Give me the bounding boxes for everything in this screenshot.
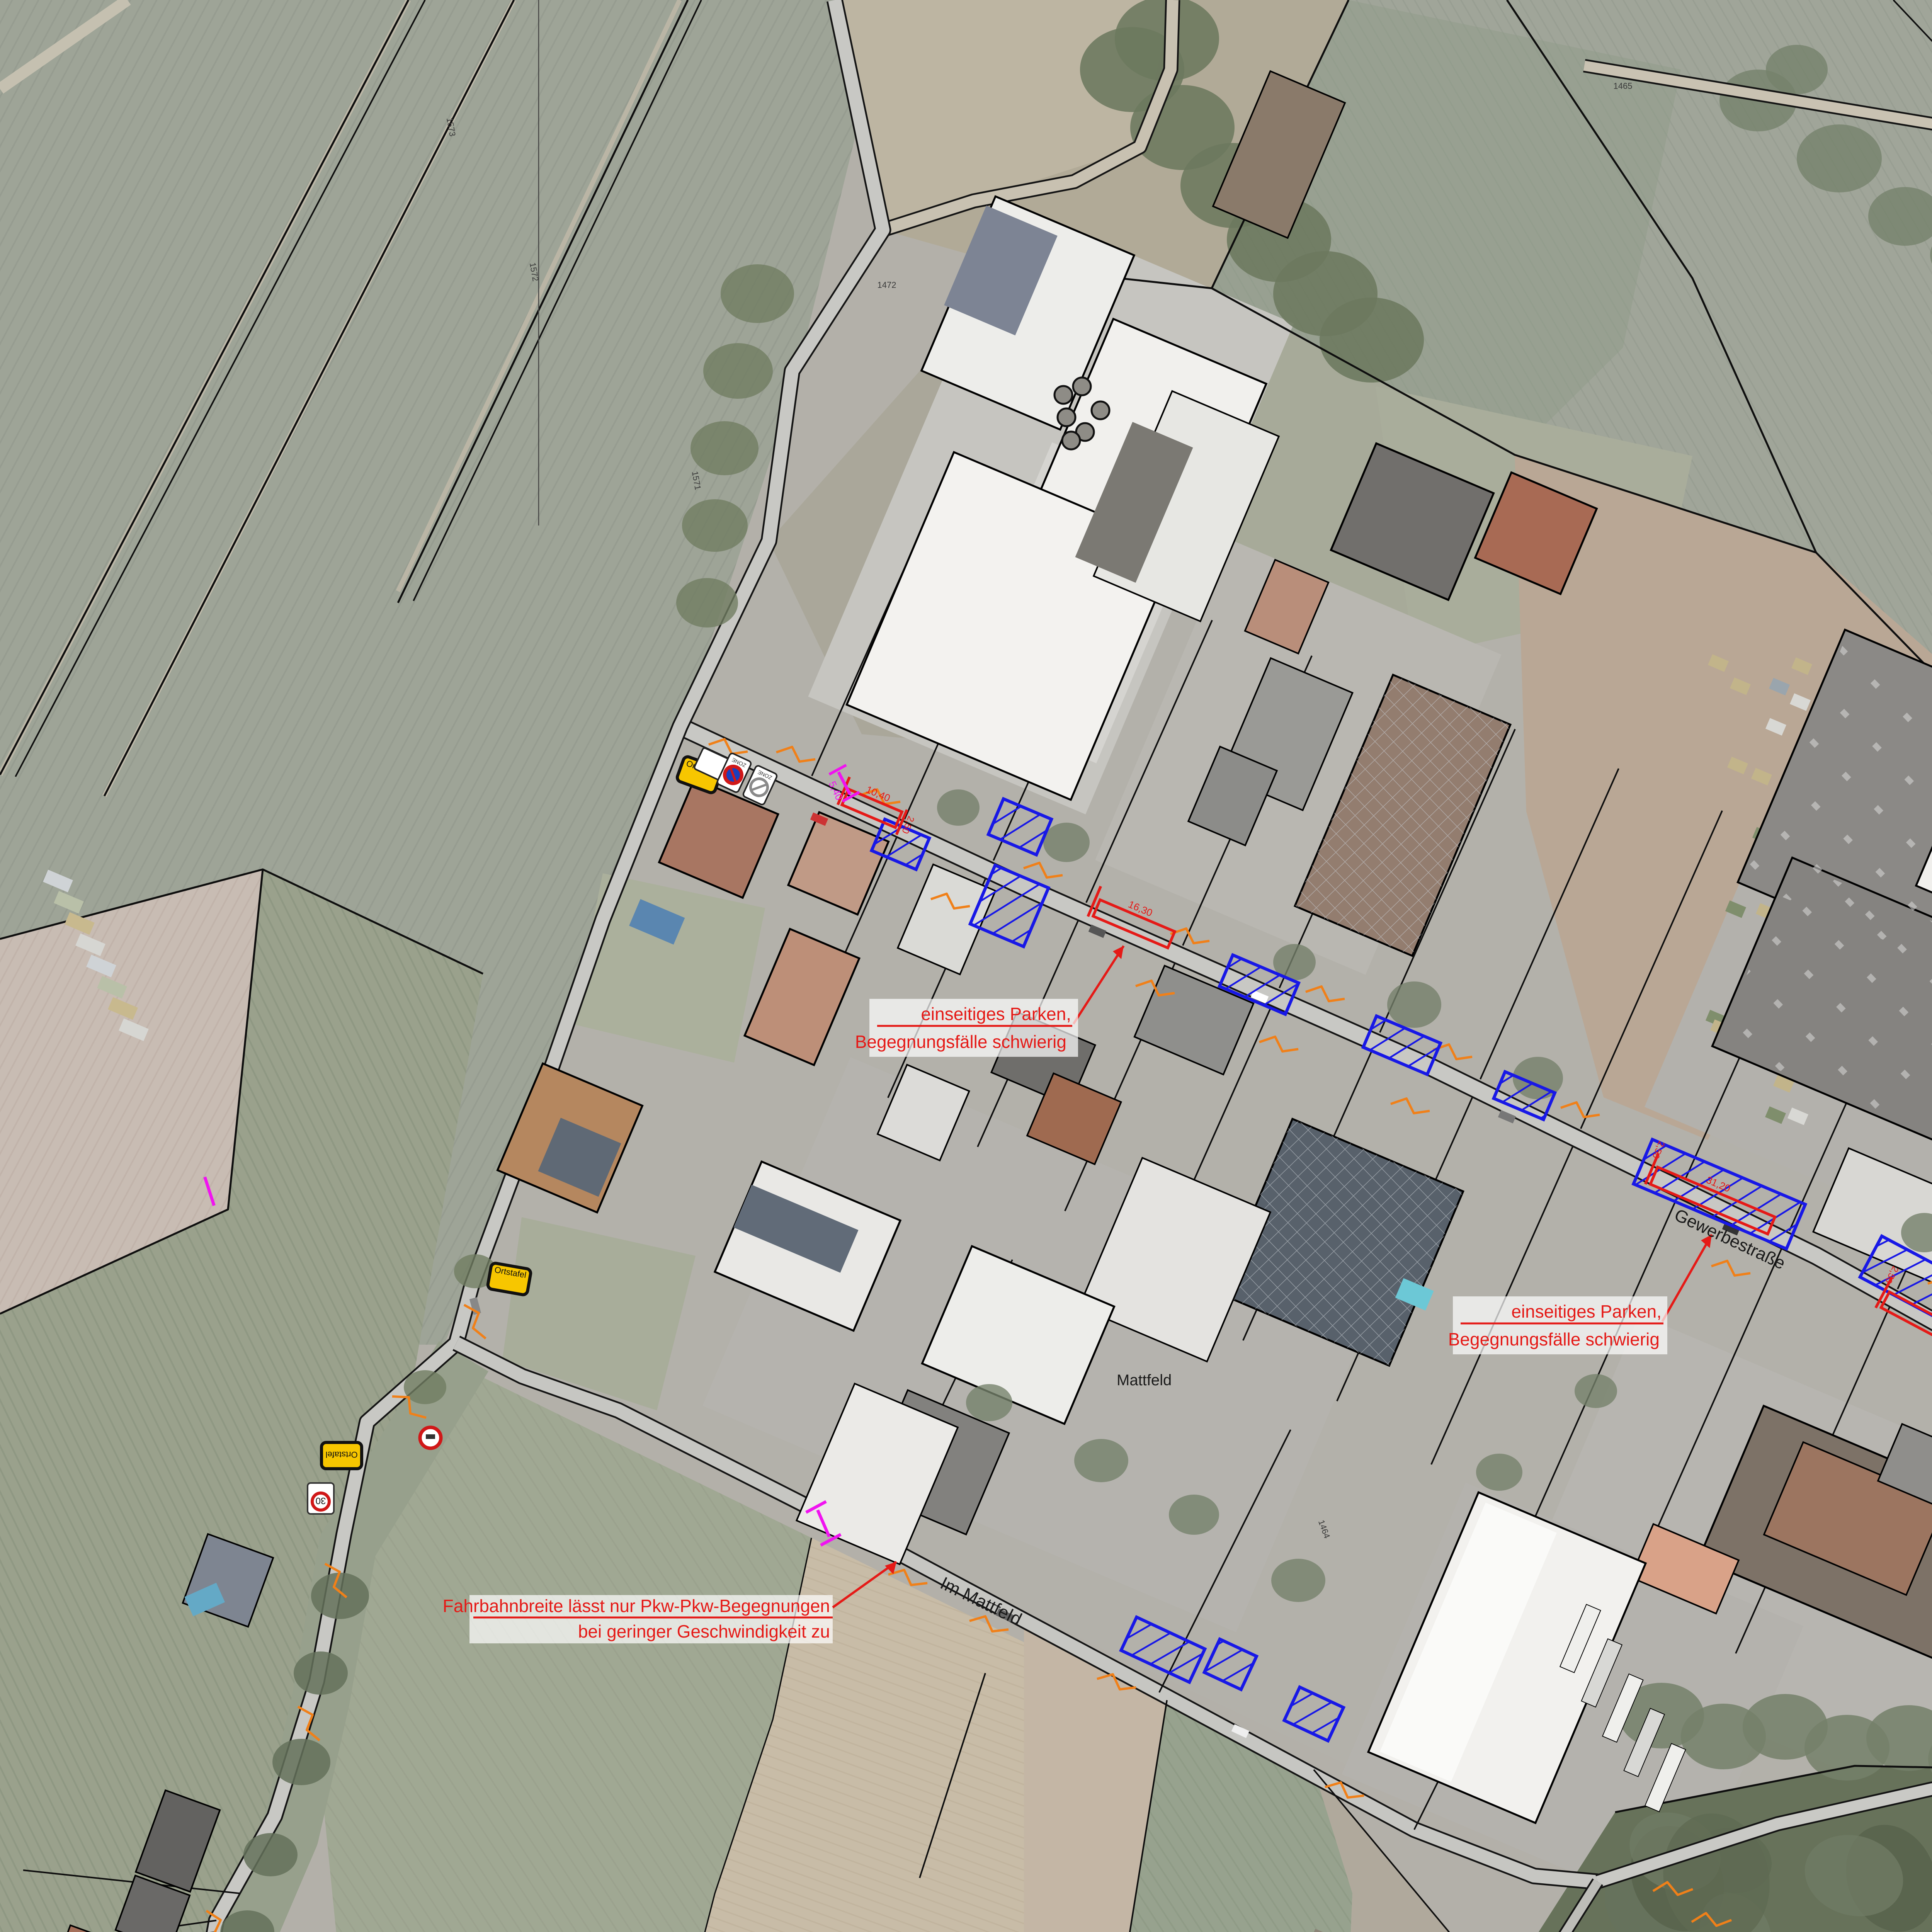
svg-text:einseitiges Parken,: einseitiges Parken, (921, 1004, 1071, 1024)
svg-text:1465: 1465 (1614, 81, 1633, 91)
svg-text:Begegnungsfälle schwierig: Begegnungsfälle schwierig (855, 1032, 1066, 1052)
svg-text:Fahrbahnbreite lässt nur Pkw-P: Fahrbahnbreite lässt nur Pkw-Pkw-Begegnu… (443, 1596, 830, 1616)
svg-text:Ortstafel: Ortstafel (325, 1450, 357, 1459)
svg-text:Begegnungsfälle schwierig: Begegnungsfälle schwierig (1448, 1329, 1660, 1349)
svg-text:einseitiges Parken,: einseitiges Parken, (1511, 1301, 1662, 1321)
svg-text:bei geringer Geschwindigkeit z: bei geringer Geschwindigkeit zu (578, 1621, 830, 1641)
svg-text:1472: 1472 (878, 280, 896, 290)
svg-text:Mattfeld: Mattfeld (1117, 1372, 1172, 1389)
svg-text:30: 30 (316, 1495, 326, 1506)
